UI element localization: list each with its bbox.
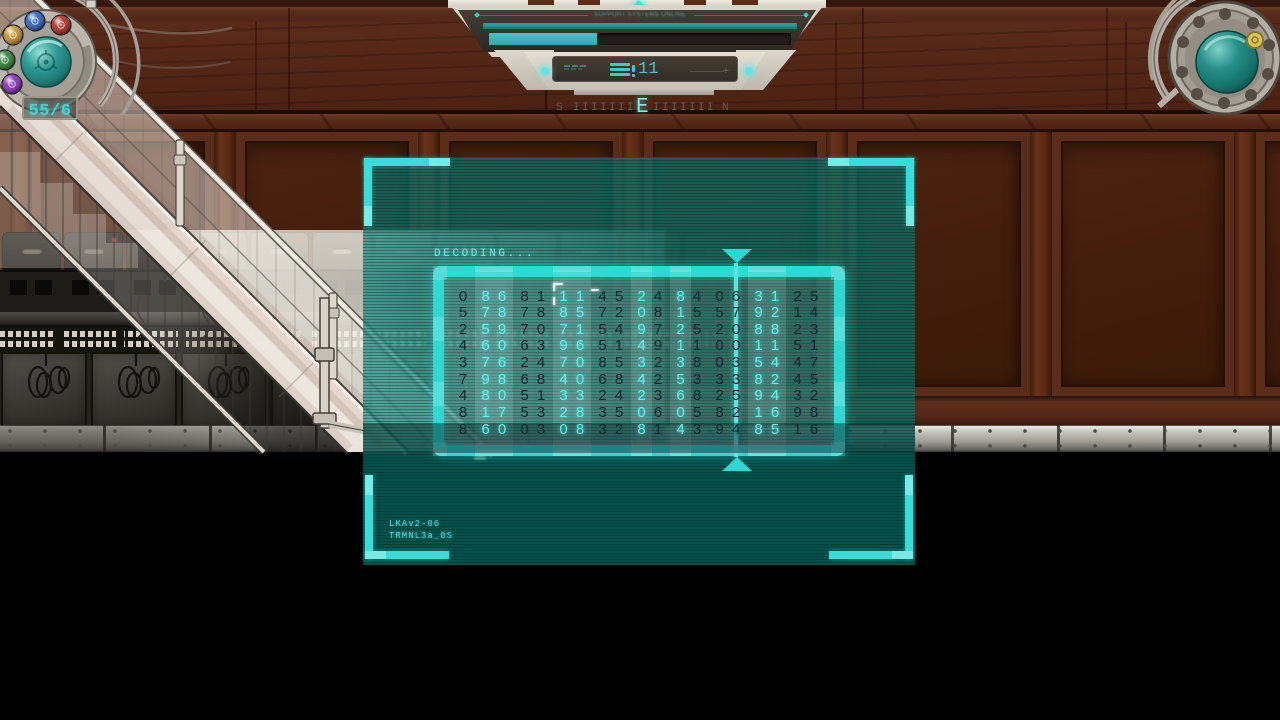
- svg-text:55/6: 55/6: [29, 102, 72, 121]
